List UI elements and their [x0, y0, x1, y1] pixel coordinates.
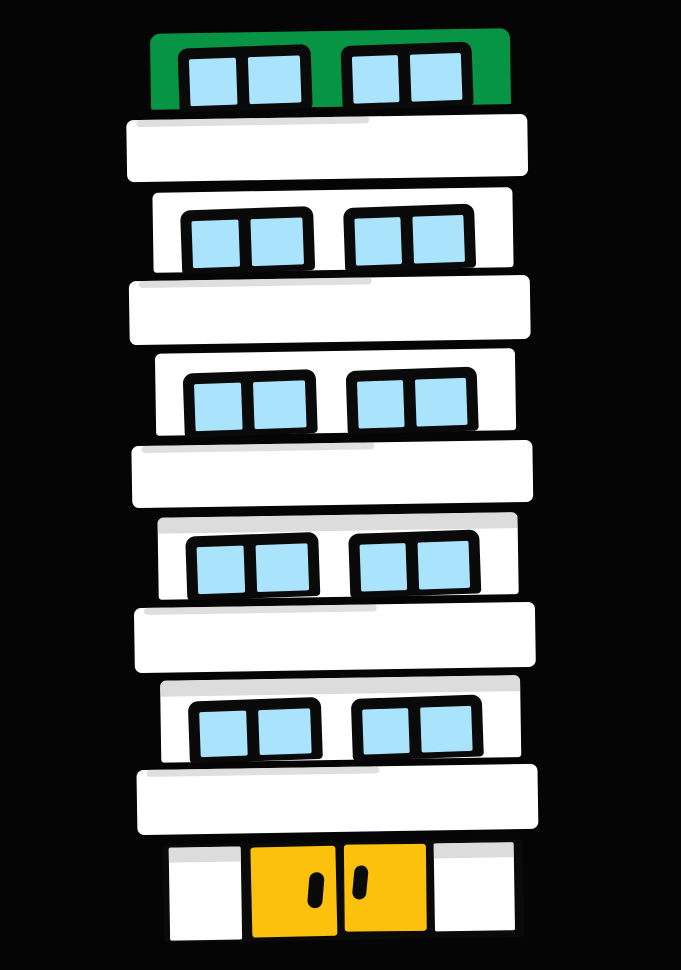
door-handle-left	[307, 872, 325, 909]
window-pane	[199, 711, 247, 758]
window-pane	[352, 55, 400, 104]
ground-wall-panel-right	[434, 842, 515, 931]
window-pane	[253, 380, 307, 429]
window-pane	[360, 543, 408, 592]
window-pane	[191, 220, 240, 269]
floor-2-window-unit-left	[188, 697, 323, 764]
window-pane	[250, 217, 304, 266]
floor-3-window-unit-right	[348, 529, 481, 598]
window-pane	[354, 217, 402, 266]
window-pane	[189, 58, 238, 107]
floor-5-window-unit-right	[343, 203, 476, 272]
panel-shadow-strip	[169, 846, 241, 862]
penthouse-window-unit-right	[340, 42, 473, 111]
penthouse-window-unit-left	[178, 44, 313, 113]
window-pane	[410, 53, 463, 102]
door-handle-right	[352, 865, 369, 900]
window-pane	[248, 55, 302, 104]
window-pane	[415, 378, 468, 427]
wall-shadow-strip	[160, 675, 520, 697]
panel-shadow-strip	[434, 842, 514, 858]
window-pane	[417, 541, 470, 590]
balcony-slab-5	[136, 764, 538, 835]
balcony-slab-3	[131, 440, 533, 508]
window-pane	[255, 543, 309, 592]
apartment-building	[125, 25, 540, 946]
floor-4-window-unit-left	[183, 369, 318, 438]
balcony-slab-4	[134, 602, 536, 673]
floor-5-window-unit-left	[180, 206, 315, 275]
floor-4-window-unit-right	[346, 366, 479, 435]
ground-floor	[163, 839, 524, 943]
window-pane	[258, 708, 312, 755]
floor-3-window-unit-left	[185, 532, 320, 601]
window-pane	[362, 708, 409, 755]
window-pane	[420, 706, 473, 753]
window-pane	[357, 380, 405, 429]
floor-2-window-unit-right	[351, 694, 484, 761]
entrance-door-left	[250, 846, 337, 938]
ground-wall-panel-left	[169, 846, 242, 940]
window-pane	[194, 383, 243, 432]
window-pane	[197, 546, 246, 595]
scene-background	[0, 0, 681, 970]
window-pane	[412, 215, 465, 264]
balcony-slab-1	[126, 114, 528, 182]
building-floors	[125, 25, 526, 31]
entrance-door-right	[344, 844, 427, 932]
balcony-slab-2	[129, 275, 531, 345]
